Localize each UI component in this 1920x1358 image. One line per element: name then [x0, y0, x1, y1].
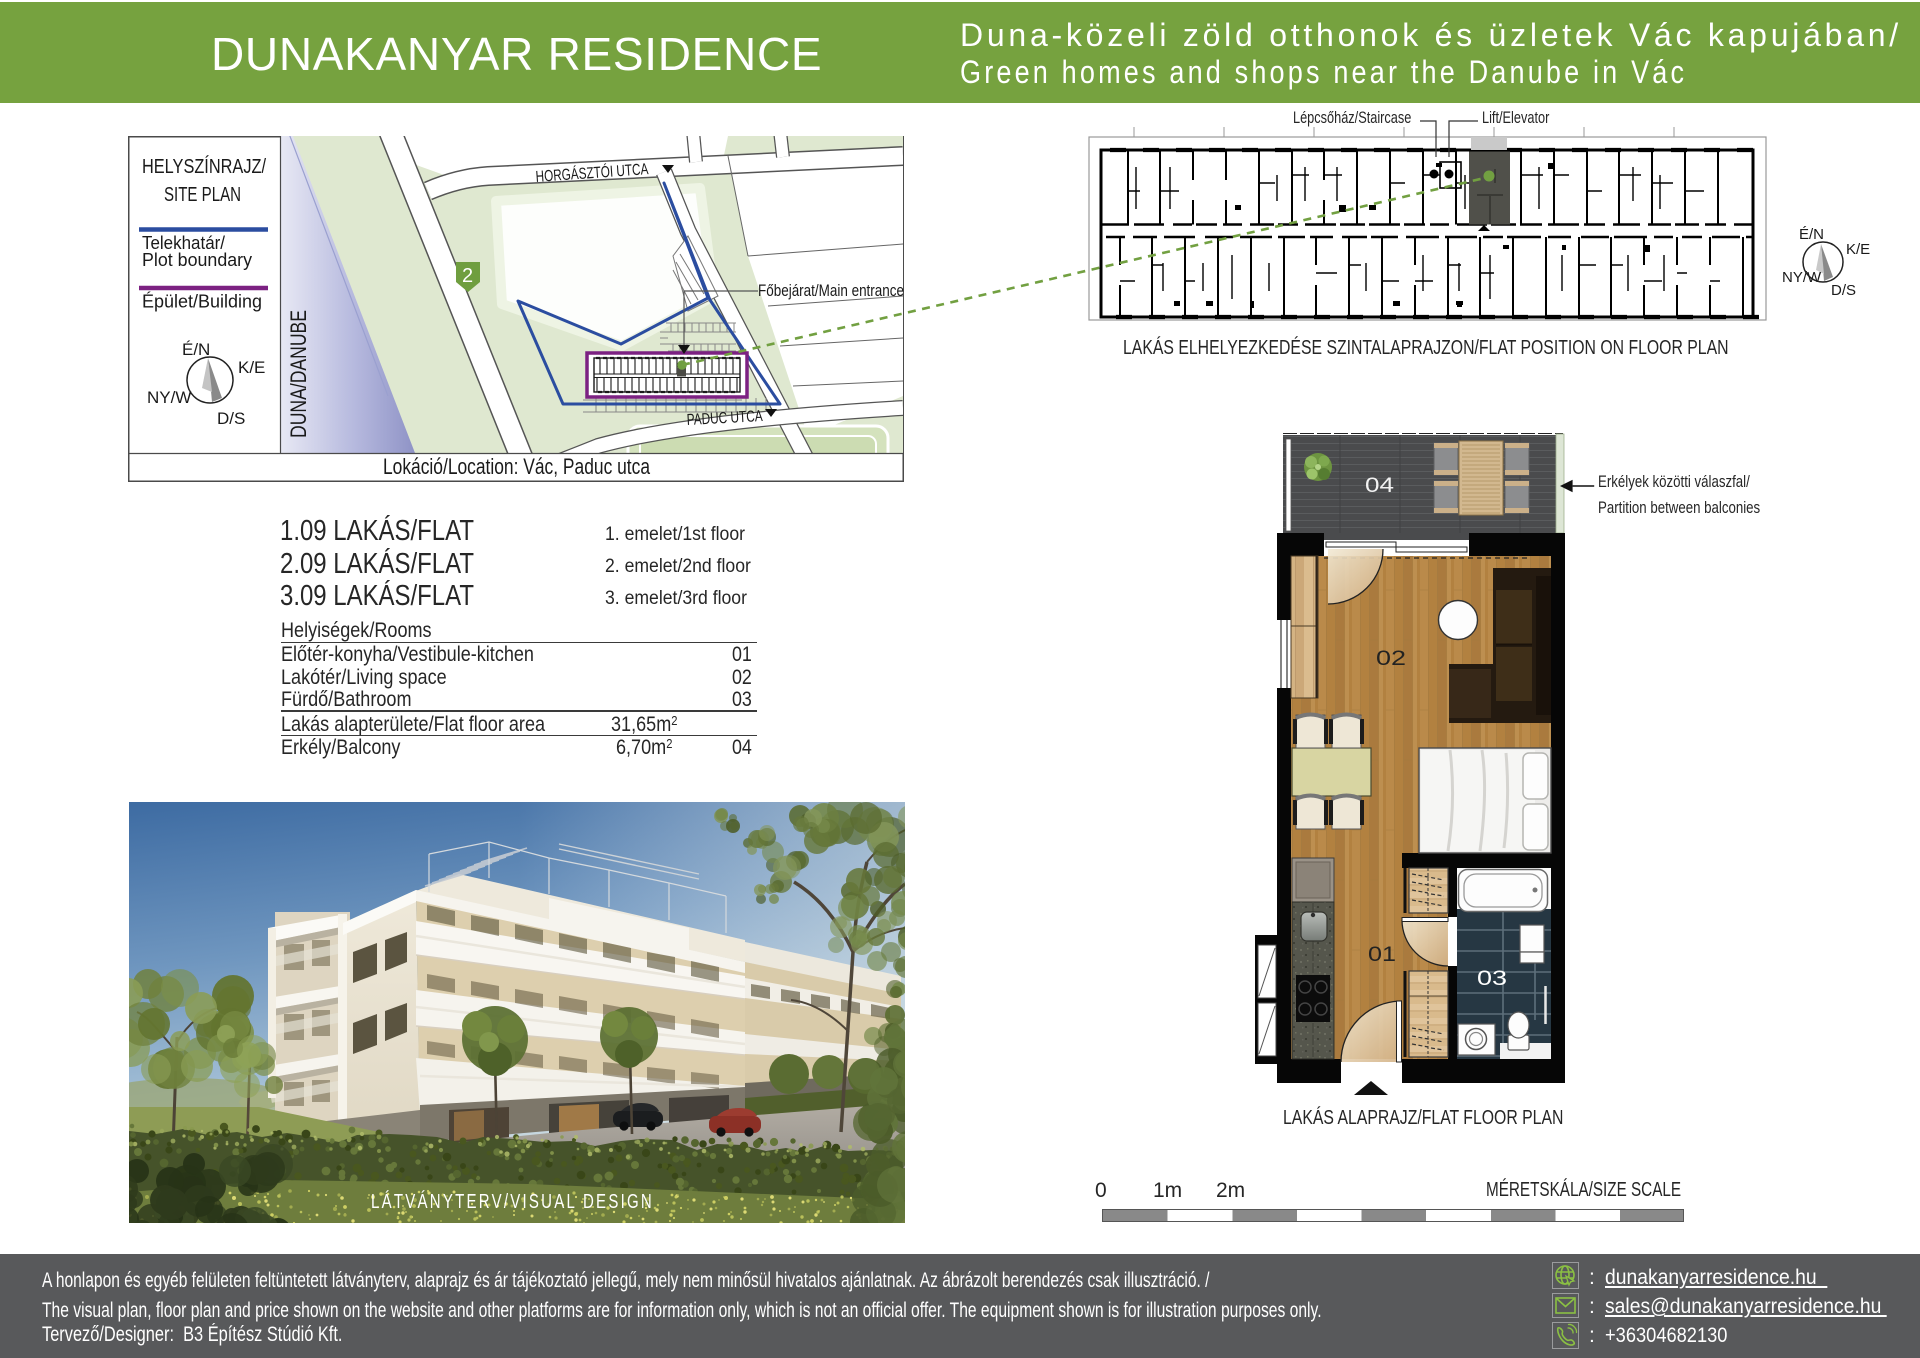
svg-text:02: 02: [1376, 647, 1406, 670]
svg-text:2: 2: [462, 265, 473, 287]
svg-text:04: 04: [1365, 474, 1394, 497]
svg-text:Plot boundary: Plot boundary: [142, 250, 252, 270]
svg-text:K/E: K/E: [238, 358, 265, 377]
svg-text:É/N: É/N: [182, 340, 210, 359]
svg-text:01: 01: [1368, 943, 1396, 966]
svg-text:NY/W: NY/W: [147, 388, 191, 407]
svg-text:D/S: D/S: [1831, 282, 1856, 299]
svg-text:Főbejárat/Main entrance: Főbejárat/Main entrance: [758, 281, 904, 300]
svg-text:K/E: K/E: [1846, 241, 1870, 258]
svg-text:Épület/Building: Épület/Building: [142, 292, 262, 312]
svg-text:NY/W: NY/W: [1782, 269, 1822, 286]
svg-text:É/N: É/N: [1799, 226, 1824, 243]
svg-text:HELYSZÍNRAJZ/: HELYSZÍNRAJZ/: [142, 155, 266, 178]
svg-text:03: 03: [1477, 967, 1507, 990]
svg-text:DUNA/DANUBE: DUNA/DANUBE: [286, 310, 311, 438]
svg-text:SITE PLAN: SITE PLAN: [164, 184, 241, 206]
svg-text:Lokáció/Location: Vác, Paduc u: Lokáció/Location: Vác, Paduc utca: [383, 454, 651, 479]
svg-text:D/S: D/S: [217, 409, 245, 428]
